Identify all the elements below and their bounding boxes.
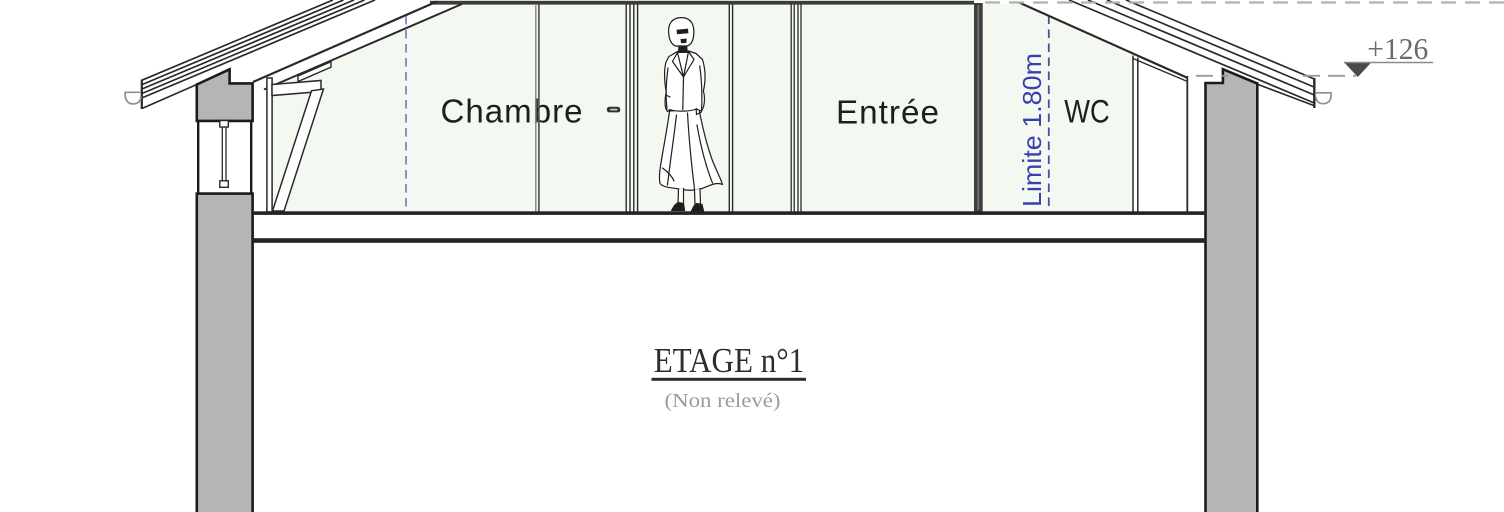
svg-text:+126: +126: [1367, 31, 1428, 66]
svg-text:ETAGE n°1: ETAGE n°1: [654, 341, 805, 380]
svg-text:Chambre: Chambre: [441, 93, 584, 130]
svg-text:Limite 1.80m: Limite 1.80m: [1017, 53, 1047, 207]
svg-text:WC: WC: [1064, 94, 1110, 130]
svg-text:(Non relevé): (Non relevé): [665, 390, 781, 412]
svg-text:Entrée: Entrée: [836, 94, 940, 131]
